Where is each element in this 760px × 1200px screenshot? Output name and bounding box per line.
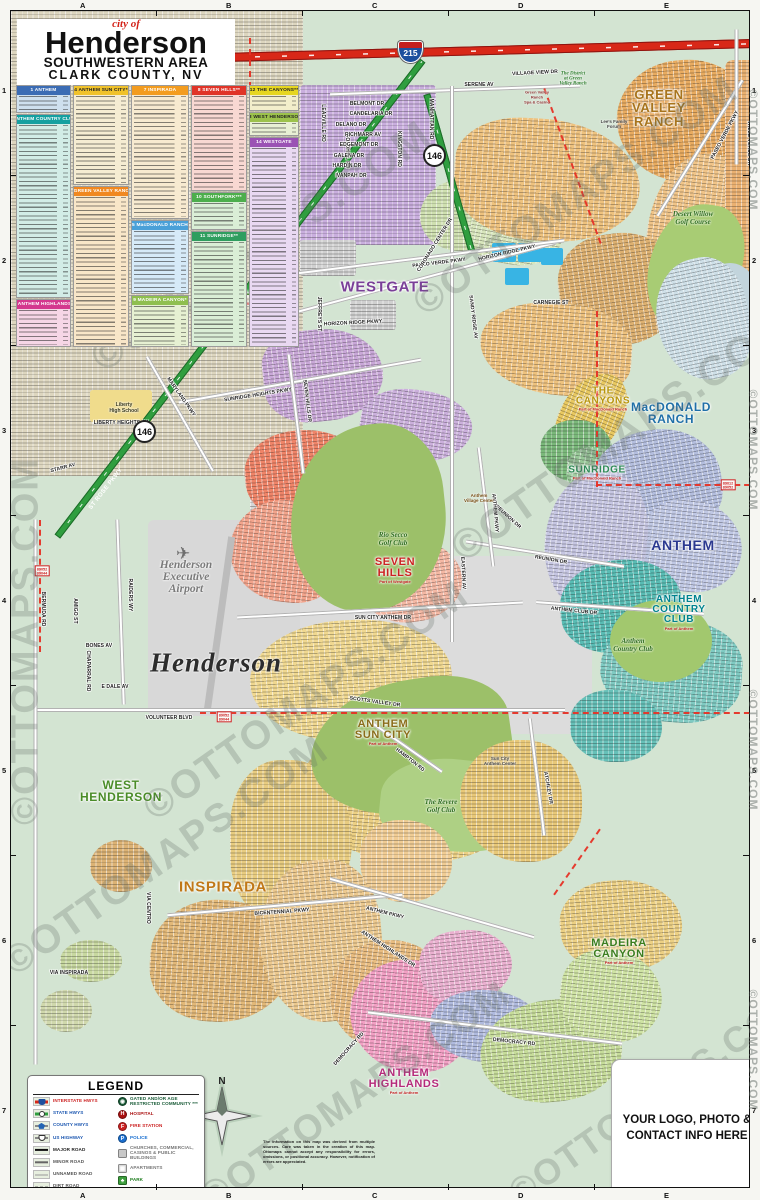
region-sublabel: Part of Anthem bbox=[591, 962, 647, 966]
legend-road-column: INTERSTATE HWYSSTATE HWYSCOUNTY HWYSUS H… bbox=[33, 1097, 114, 1188]
legend-line bbox=[35, 1174, 48, 1175]
grid-letter: E bbox=[664, 1191, 669, 1200]
region-label: MacDONALD RANCH bbox=[631, 401, 711, 425]
region-label: ANTHEM COUNTRY CLUBPart of Anthem bbox=[652, 595, 705, 631]
interstate-icon bbox=[33, 1097, 50, 1106]
ruler-tick bbox=[10, 175, 16, 176]
region-sublabel: Part of Westgate bbox=[375, 581, 415, 585]
region-sublabel: Part of Anthem bbox=[355, 743, 411, 747]
unnamed-icon bbox=[33, 1170, 50, 1179]
legend-poi-row: HHOSPITAL bbox=[118, 1110, 199, 1119]
ruler-tick bbox=[448, 10, 449, 16]
index-section-header: 4 ANTHEM SUN CITY* bbox=[74, 86, 128, 95]
major-icon bbox=[33, 1146, 50, 1155]
index-section-header: 3 ANTHEM HIGHLANDS* bbox=[17, 300, 70, 309]
street-label: VIA INSPIRADA bbox=[50, 970, 88, 976]
legend-road-row: US HIGHWAY bbox=[33, 1134, 114, 1143]
index-section: 1 ANTHEM bbox=[16, 85, 71, 113]
grid-number: 4 bbox=[752, 596, 756, 605]
legend-road-label: COUNTY HWYS bbox=[53, 1123, 88, 1128]
grid-number: 1 bbox=[2, 86, 6, 95]
legend-road-label: STATE HWYS bbox=[53, 1111, 83, 1116]
street-label: BONES AV bbox=[86, 643, 112, 649]
index-section-rows bbox=[76, 96, 126, 183]
map-canvas: city of Henderson SOUTHWESTERN AREA CLAR… bbox=[11, 11, 749, 1188]
region-label: WEST HENDERSON bbox=[80, 779, 162, 803]
legend-poi-label: APARTMENTS bbox=[130, 1166, 163, 1171]
legend-road-label: MINOR ROAD bbox=[53, 1160, 84, 1165]
grid-number: 5 bbox=[752, 766, 756, 775]
legend-road-row: MINOR ROAD bbox=[33, 1158, 114, 1167]
map-title-block: city of Henderson SOUTHWESTERN AREA CLAR… bbox=[17, 19, 235, 85]
grid-number: 5 bbox=[2, 766, 6, 775]
street-label: VOLUNTEER BLVD bbox=[146, 715, 193, 721]
index-section-rows bbox=[134, 231, 186, 292]
legend-poi-icon: ♣ bbox=[118, 1176, 127, 1185]
street-label: BELMONT DR bbox=[350, 101, 384, 107]
contact-line1: YOUR LOGO, PHOTO & bbox=[623, 1113, 749, 1129]
legend-poi-row: ▦APARTMENTS bbox=[118, 1164, 199, 1173]
watermark: ©OTTOMAPS.COM bbox=[11, 457, 48, 825]
index-section-header: 8 SEVEN HILLS** bbox=[192, 86, 246, 95]
legend-poi-row: PPOLICE bbox=[118, 1134, 199, 1143]
place-label: Henderson Executive Airport bbox=[160, 559, 212, 595]
region-sublabel: Part of MacDonald Ranch bbox=[576, 408, 630, 412]
ruler-tick bbox=[156, 1184, 157, 1190]
legend-poi-label: HOSPITAL bbox=[130, 1112, 154, 1117]
region-label: ANTHEM bbox=[651, 538, 714, 552]
airplane-icon: ✈ bbox=[176, 544, 190, 564]
index-section-header: 5 MacDONALD RANCH bbox=[132, 221, 188, 230]
street-label: LEADVILLE RD bbox=[320, 104, 326, 142]
legend-poi-row: ♣PARK bbox=[118, 1176, 199, 1185]
street-label: EDGEMONT DR bbox=[340, 142, 379, 148]
index-section-rows bbox=[252, 123, 296, 134]
us-shield-icon bbox=[38, 1135, 45, 1141]
legend-poi-column: ◉GATED AND/OR AGE RESTRICTED COMMUNITY *… bbox=[118, 1097, 199, 1188]
index-section-rows bbox=[194, 203, 244, 228]
legend-poi-label: CHURCHES, COMMERCIAL, CASINOS & PUBLIC B… bbox=[130, 1146, 199, 1160]
grid-letter: C bbox=[372, 1191, 377, 1200]
index-section: 6 GREEN VALLEY RANCH bbox=[73, 186, 129, 347]
region-label: ANTHEM SUN CITYPart of Anthem bbox=[355, 719, 411, 747]
street-label: SUN CITY ANTHEM DR bbox=[355, 615, 411, 621]
ruler-tick bbox=[10, 515, 16, 516]
terrain-blob bbox=[90, 840, 152, 892]
contact-line2: CONTACT INFO HERE bbox=[623, 1129, 749, 1145]
terrain-blob bbox=[505, 268, 529, 285]
legend-poi-icon: F bbox=[118, 1122, 127, 1131]
index-section-rows bbox=[19, 310, 68, 345]
street-label: CANDELARIA DR bbox=[350, 111, 393, 117]
index-section: 4 ANTHEM SUN CITY* bbox=[73, 85, 129, 185]
legend-road-row: STATE HWYS bbox=[33, 1109, 114, 1118]
street-label: DELANO DR bbox=[336, 122, 367, 128]
county-icon bbox=[33, 1121, 50, 1130]
place-label: The District at Green Valley Ranch bbox=[559, 72, 586, 87]
legend-road-label: UNNAMED ROAD bbox=[53, 1172, 92, 1177]
index-section-header: 13 WEST HENDERSON bbox=[250, 113, 298, 122]
legend-poi-icon: ◉ bbox=[118, 1097, 127, 1106]
ruler-tick bbox=[743, 345, 749, 346]
legend-road-label: US HIGHWAY bbox=[53, 1136, 83, 1141]
grid-number: 4 bbox=[2, 596, 6, 605]
ruler-tick bbox=[743, 515, 749, 516]
street-label: VILLAGE VIEW DR bbox=[512, 69, 558, 77]
state-route-shield: 146 bbox=[133, 420, 156, 443]
index-section-header: 7 INSPIRADA bbox=[132, 86, 188, 95]
street-label: JEFFREYS ST bbox=[316, 297, 322, 332]
street-label: KINGSTON RD bbox=[396, 131, 402, 167]
legend-poi-row: ◉GATED AND/OR AGE RESTRICTED COMMUNITY *… bbox=[118, 1097, 199, 1107]
county-badge-icon bbox=[38, 1123, 45, 1129]
us-icon bbox=[33, 1134, 50, 1143]
region-label: SEVEN HILLSPart of Westgate bbox=[375, 557, 415, 585]
region-label: INSPIRADA bbox=[179, 879, 267, 894]
grid-letter: D bbox=[518, 1, 523, 10]
index-section: 11 SUNRIDGE** bbox=[191, 231, 247, 347]
terrain-blob bbox=[460, 740, 582, 862]
grid-letter: C bbox=[372, 1, 377, 10]
street-label: AMIGO ST bbox=[72, 598, 78, 624]
ruler-tick bbox=[10, 1025, 16, 1026]
compass-n-label: N bbox=[218, 1076, 225, 1087]
index-section: 7 INSPIRADA bbox=[131, 85, 189, 219]
street-label: SANDY RIDGE AV bbox=[467, 295, 478, 339]
index-section-rows bbox=[194, 96, 244, 189]
street-label: BERMUDA RD bbox=[40, 592, 46, 627]
map-disclaimer: The information on this map was derived … bbox=[263, 1139, 375, 1164]
region-label: GREEN VALLEY RANCH bbox=[632, 88, 686, 128]
street-label: CARNEGIE ST bbox=[533, 300, 568, 306]
grid-letter: B bbox=[226, 1, 231, 10]
legend-poi-icon: P bbox=[118, 1134, 127, 1143]
ruler-tick bbox=[594, 1184, 595, 1190]
legend-poi-icon: H bbox=[118, 1110, 127, 1119]
region-label: THE CANYONSPart of MacDonald Ranch bbox=[576, 386, 630, 411]
grid-letter: B bbox=[226, 1191, 231, 1200]
legend-road-row: MAJOR ROAD bbox=[33, 1146, 114, 1155]
place-label: The Revere Golf Club bbox=[425, 798, 458, 814]
legend-line bbox=[35, 1162, 48, 1163]
street-label: CHAPARRAL RD bbox=[85, 650, 91, 691]
legend-road-row: DIRT ROAD bbox=[33, 1182, 114, 1188]
legend-poi-row: FFIRE STATION bbox=[118, 1122, 199, 1131]
region-label: ANTHEM HIGHLANDSPart of Anthem bbox=[369, 1068, 440, 1096]
grid-number: 7 bbox=[752, 1106, 756, 1115]
index-section: 9 MADEIRA CANYON* bbox=[131, 295, 189, 347]
index-section-header: 1 ANTHEM bbox=[17, 86, 70, 95]
legend-poi-row: CHURCHES, COMMERCIAL, CASINOS & PUBLIC B… bbox=[118, 1146, 199, 1160]
grid-number: 6 bbox=[752, 936, 756, 945]
place-label: Desert Willow Golf Course bbox=[673, 210, 713, 226]
index-section-header: 14 WESTGATE bbox=[250, 138, 298, 147]
grid-letter: E bbox=[664, 1, 669, 10]
grid-letter: A bbox=[80, 1, 85, 10]
index-section-header: 9 MADEIRA CANYON* bbox=[132, 296, 188, 305]
legend-road-label: INTERSTATE HWYS bbox=[53, 1099, 98, 1104]
contact-placeholder-box: YOUR LOGO, PHOTO & CONTACT INFO HERE bbox=[611, 1059, 749, 1188]
ruler-tick bbox=[743, 855, 749, 856]
legend-road-row: INTERSTATE HWYS bbox=[33, 1097, 114, 1106]
place-label: Sun City Anthem Center bbox=[484, 756, 516, 766]
ruler-tick bbox=[10, 855, 16, 856]
street-label: SERENE AV bbox=[464, 82, 493, 88]
road-segment bbox=[33, 520, 37, 1065]
index-section: 12 THE CANYONS** bbox=[249, 85, 299, 111]
interstate-badge-icon bbox=[38, 1099, 45, 1105]
grid-number: 3 bbox=[2, 426, 6, 435]
index-section-header: 12 THE CANYONS** bbox=[250, 86, 298, 95]
legend-poi-label: GATED AND/OR AGE RESTRICTED COMMUNITY **… bbox=[130, 1097, 199, 1107]
terrain-blob bbox=[570, 690, 662, 762]
ruler-tick bbox=[156, 10, 157, 16]
ruler-tick bbox=[302, 1184, 303, 1190]
grid-number: 6 bbox=[2, 936, 6, 945]
index-section-rows bbox=[19, 96, 68, 111]
region-sublabel: Part of MacDonald Ranch bbox=[568, 477, 626, 481]
index-section-rows bbox=[76, 197, 126, 345]
legend-line bbox=[35, 1149, 48, 1151]
minor-icon bbox=[33, 1158, 50, 1167]
ruler-tick bbox=[743, 1025, 749, 1026]
ruler-tick bbox=[448, 1184, 449, 1190]
road-segment bbox=[115, 519, 125, 704]
index-section: 3 ANTHEM HIGHLANDS* bbox=[16, 299, 71, 347]
index-section: 14 WESTGATE bbox=[249, 137, 299, 347]
place-label: Anthem Country Club bbox=[613, 637, 653, 653]
zip-code-tag: 89052 89044 bbox=[217, 711, 232, 722]
ruler-tick bbox=[302, 10, 303, 16]
dirt-icon bbox=[33, 1182, 50, 1188]
legend-road-label: MAJOR ROAD bbox=[53, 1148, 85, 1153]
street-label: VIA CENTRO bbox=[145, 892, 151, 924]
index-section-header: 11 SUNRIDGE** bbox=[192, 232, 246, 241]
region-sublabel: Part of Anthem bbox=[652, 627, 705, 631]
street-label: GALENA DR bbox=[334, 153, 364, 159]
grid-letter: A bbox=[80, 1191, 85, 1200]
index-section: 8 SEVEN HILLS** bbox=[191, 85, 247, 191]
grid-number: 2 bbox=[2, 256, 6, 265]
legend-poi-label: POLICE bbox=[130, 1136, 148, 1141]
index-section-rows bbox=[252, 96, 296, 109]
region-label: MADEIRA CANYONPart of Anthem bbox=[591, 938, 647, 966]
ruler-tick bbox=[10, 345, 16, 346]
legend-title: LEGEND bbox=[33, 1079, 199, 1095]
grid-number: 7 bbox=[2, 1106, 6, 1115]
index-section: 5 MacDONALD RANCH bbox=[131, 220, 189, 294]
place-label: Lee's Family Forum bbox=[601, 119, 628, 129]
zip-code-tag: 89052 89044 bbox=[35, 565, 50, 576]
index-section-rows bbox=[134, 96, 186, 217]
region-label: WESTGATE bbox=[341, 279, 430, 294]
terrain-blob bbox=[40, 990, 92, 1032]
index-section-header: 6 GREEN VALLEY RANCH bbox=[74, 187, 128, 196]
grid-letter: D bbox=[518, 1191, 523, 1200]
ruler-tick bbox=[743, 175, 749, 176]
legend-road-row: COUNTY HWYS bbox=[33, 1121, 114, 1130]
region-label: SUNRIDGEPart of MacDonald Ranch bbox=[568, 465, 626, 480]
legend-line bbox=[35, 1186, 48, 1187]
street-label: RAIDERS WY bbox=[127, 579, 133, 612]
place-label: Liberty High School bbox=[109, 402, 138, 414]
legend-poi-label: PARK bbox=[130, 1178, 143, 1183]
street-label: HARDIN DR bbox=[333, 163, 362, 169]
place-label: Green Valley Ranch Spa & Casino bbox=[524, 90, 550, 105]
index-section-rows bbox=[194, 242, 244, 345]
legend-road-label: DIRT ROAD bbox=[53, 1184, 79, 1188]
street-label: E DALE AV bbox=[101, 684, 128, 690]
state-route-shield: 146 bbox=[423, 144, 446, 167]
region-sublabel: Part of Anthem bbox=[369, 1092, 440, 1096]
legend-poi-icon: ▦ bbox=[118, 1164, 127, 1173]
street-label: MANHATTAN RD bbox=[428, 98, 434, 139]
index-section-rows bbox=[134, 306, 186, 345]
zip-boundary-line bbox=[249, 38, 251, 88]
legend-poi-icon bbox=[118, 1149, 127, 1158]
title-county: CLARK COUNTY, NV bbox=[17, 69, 235, 82]
title-city: Henderson bbox=[17, 29, 235, 56]
terrain-blob bbox=[541, 248, 563, 265]
legend-poi-label: FIRE STATION bbox=[130, 1124, 162, 1129]
index-section: 13 WEST HENDERSON bbox=[249, 112, 299, 136]
place-label: Anthem Village Center bbox=[464, 493, 494, 503]
map-sheet: city of Henderson SOUTHWESTERN AREA CLAR… bbox=[0, 0, 760, 1200]
place-label: Rio Secco Golf Club bbox=[379, 531, 408, 547]
index-section-rows bbox=[252, 148, 296, 345]
legend-road-row: UNNAMED ROAD bbox=[33, 1170, 114, 1179]
state-icon bbox=[33, 1109, 50, 1118]
street-label: VALLE VERDE DR bbox=[746, 121, 749, 166]
index-section-header: 2 ANTHEM COUNTRY CLUB* bbox=[17, 115, 70, 124]
street-label: RICHMARR AV bbox=[345, 132, 381, 138]
zip-boundary-line bbox=[39, 520, 41, 652]
grid-number: 1 bbox=[752, 86, 756, 95]
road-segment bbox=[734, 30, 738, 165]
index-section: 10 SOUTHFORK*** bbox=[191, 192, 247, 230]
ruler-tick bbox=[594, 10, 595, 16]
index-section-header: 10 SOUTHFORK*** bbox=[192, 193, 246, 202]
zip-boundary-line bbox=[200, 712, 749, 714]
road-segment bbox=[450, 86, 454, 642]
shield-number: 215 bbox=[399, 48, 422, 58]
index-section: 2 ANTHEM COUNTRY CLUB* bbox=[16, 114, 71, 298]
index-section-rows bbox=[19, 125, 68, 296]
street-label: IVANPAH DR bbox=[335, 173, 366, 179]
place-label: Henderson bbox=[150, 648, 282, 679]
legend: LEGEND INTERSTATE HWYSSTATE HWYSCOUNTY H… bbox=[27, 1075, 205, 1188]
grid-number: 2 bbox=[752, 256, 756, 265]
zip-code-tag: 89012 89052 bbox=[721, 479, 736, 490]
ruler-tick bbox=[10, 685, 16, 686]
state-badge-icon bbox=[39, 1111, 45, 1117]
ruler-tick bbox=[743, 685, 749, 686]
grid-number: 3 bbox=[752, 426, 756, 435]
